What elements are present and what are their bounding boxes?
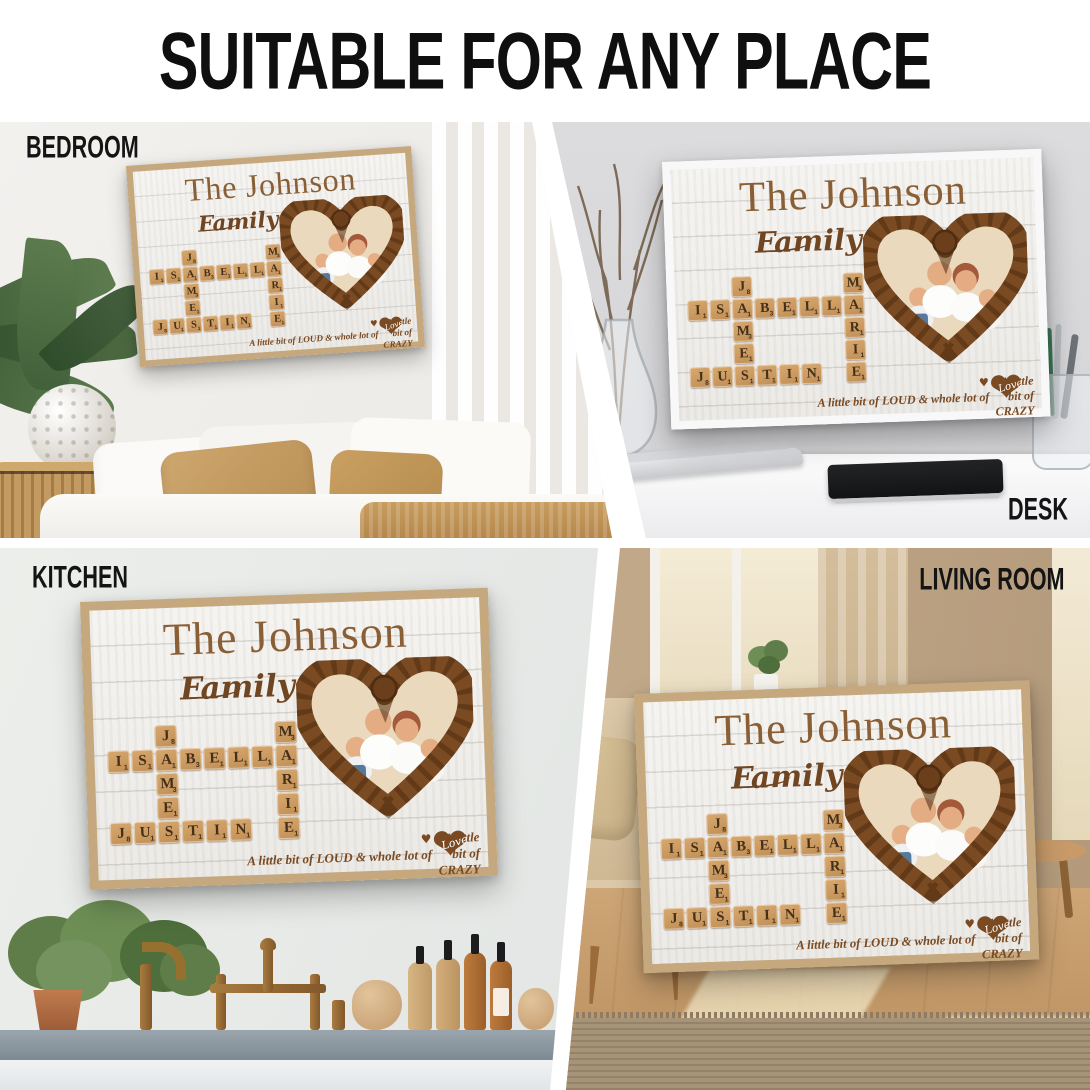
tile-value: 1 (181, 328, 184, 333)
scrabble-tile: M3 (183, 283, 199, 299)
heart-rope-photo-frame (843, 746, 1019, 909)
tile-value: 1 (723, 850, 727, 857)
poster-subtitle-text: Family (197, 207, 279, 238)
scrabble-tile: B3 (730, 835, 752, 857)
tile-value: 8 (722, 827, 726, 834)
tile-value: 1 (860, 330, 864, 337)
scrabble-tile: A1 (707, 836, 729, 858)
tile-value: 1 (772, 918, 776, 925)
tile-value: 1 (124, 764, 128, 771)
tile-value: 1 (244, 273, 247, 278)
scrabble-tile: M3 (156, 773, 179, 796)
scrabble-tile: E1 (216, 264, 232, 280)
tile-value: 1 (177, 277, 180, 282)
heart-rope-photo-frame (278, 194, 409, 316)
tile-letter: S (741, 369, 749, 383)
tile-value: 1 (725, 312, 729, 319)
crossword: J8M3I1S1A1B3E1L1L1A1M3R1E1I1J8U1S1T1I1N1… (105, 719, 301, 846)
scrabble-tile: J8 (154, 725, 177, 748)
tile-letter: I (285, 796, 291, 811)
tile-letter: J (713, 817, 721, 832)
tile-value: 3 (196, 762, 200, 769)
poster-canvas: The Johnson Family J8M3I1S1A1B3E (643, 689, 1030, 964)
scrabble-tile: B3 (199, 265, 215, 281)
tile-letter: N (785, 907, 796, 922)
tile-value: 3 (839, 823, 843, 830)
sill-plant-foliage (758, 656, 780, 674)
poster-canvas: The Johnson Family J8M3I1S1A1B3E (671, 157, 1042, 421)
tile-value: 1 (161, 278, 164, 283)
scrabble-tile: E1 (733, 343, 754, 364)
scrabble-tile: A1 (182, 266, 198, 282)
tile-value: 3 (770, 311, 774, 318)
scrabble-tile: J8 (731, 276, 752, 297)
tile-letter: S (170, 270, 177, 281)
family-name-poster: The Johnson Family J8M3I1S1A1B3E (662, 149, 1051, 430)
scene-label-desk: DESK (1008, 492, 1068, 528)
tile-letter: J (738, 280, 745, 294)
small-heart-icon: ♥ (420, 831, 431, 845)
tile-value: 1 (173, 811, 177, 818)
small-heart-icon: ♥ (964, 917, 975, 931)
tile-value: 1 (280, 304, 283, 309)
scrabble-tile: I1 (149, 269, 165, 285)
gourd (352, 980, 402, 1030)
scrabble-tile: I1 (756, 904, 778, 926)
scene-label-living-room: LIVING ROOM (919, 562, 1064, 598)
tile-letter: B (185, 752, 196, 767)
tile-letter: E (832, 906, 842, 921)
tile-value: 1 (747, 312, 751, 319)
poster-subtitle-text: Family (179, 668, 295, 708)
bridge-faucet-post (310, 974, 320, 1030)
tile-value: 1 (150, 836, 154, 843)
family-name-poster: The Johnson Family J8M3I1S1A1B3E (80, 588, 498, 890)
rope-knot (332, 210, 350, 228)
tile-value: 1 (196, 310, 199, 315)
poster-subtitle: Family (731, 759, 792, 796)
tile-letter: S (716, 910, 725, 925)
tile-letter: U (139, 825, 150, 840)
tile-letter: J (697, 370, 704, 384)
scrabble-tile: R1 (276, 768, 299, 791)
tile-letter: L (805, 300, 815, 314)
scrabble-tile: M3 (265, 244, 281, 260)
scrabble-tile: J8 (181, 249, 197, 265)
tile-letter: L (257, 749, 268, 764)
tile-value: 8 (705, 380, 709, 387)
scrabble-tile: U1 (169, 318, 185, 334)
scrabble-tile: M3 (733, 321, 754, 342)
poster-subtitle: Family (197, 209, 242, 237)
tile-letter: A (829, 836, 840, 851)
tile-letter: E (274, 313, 282, 324)
scrabble-tile: I1 (660, 838, 682, 860)
tile-letter: L (254, 264, 262, 275)
tile-letter: I (668, 842, 674, 857)
tile-value: 1 (228, 274, 231, 279)
scrabble-tile: L1 (800, 833, 822, 855)
tile-letter: T (207, 318, 215, 329)
tile-value: 1 (676, 852, 680, 859)
tile-letter: A (161, 752, 172, 767)
tile-letter: T (188, 824, 199, 839)
bottle-cap (471, 934, 479, 954)
heart-rope-photo-frame (295, 655, 477, 823)
scrabble-tile: I1 (687, 300, 708, 321)
poster-subtitle-text: Family (755, 223, 863, 260)
poster-in-living-room: The Johnson Family J8M3I1S1A1B3E (634, 680, 1039, 973)
heart-rope-photo-frame (862, 212, 1031, 368)
crossword: J8M3I1S1A1B3E1L1L1A1M3R1E1I1J8U1S1T1I1N1… (686, 271, 868, 389)
room-collage: The Johnson Family J8M3I1S1A1B3E (0, 122, 1090, 1090)
tile-letter: I (853, 343, 859, 357)
scrabble-tile: L1 (821, 295, 842, 316)
scrabble-tile: I1 (206, 819, 229, 842)
scrabble-tile: E1 (203, 747, 226, 770)
love-heart-badge: ❤ Love (974, 907, 1022, 953)
tile-value: 1 (261, 271, 264, 276)
scrabble-tile: L1 (251, 745, 274, 768)
tile-letter: S (716, 303, 724, 317)
tile-letter: L (783, 837, 793, 852)
terracotta-pot (30, 990, 86, 1032)
tile-letter: J (186, 252, 192, 263)
tile-letter: I (764, 908, 770, 923)
tile-letter: E (759, 838, 769, 853)
tile-letter: E (782, 300, 792, 314)
tile-value: 8 (164, 329, 167, 334)
tile-value: 3 (748, 334, 752, 341)
gourd (518, 988, 554, 1030)
scrabble-tile: A1 (732, 298, 753, 319)
tile-letter: L (806, 837, 816, 852)
scrabble-tile: J8 (690, 367, 711, 388)
rope-knot (933, 230, 957, 254)
scrabble-tile: L1 (249, 262, 265, 278)
tile-letter: I (274, 297, 279, 308)
tile-value: 1 (792, 310, 796, 317)
tile-value: 8 (747, 289, 751, 296)
scrabble-tile: E1 (157, 797, 180, 820)
tile-value: 8 (126, 836, 130, 843)
tile-value: 8 (171, 739, 175, 746)
bottle-cap (416, 946, 424, 964)
tile-letter: B (203, 268, 211, 279)
tile-value: 1 (860, 352, 864, 359)
tile-value: 1 (702, 921, 706, 928)
tile-letter: E (220, 267, 228, 278)
tile-letter: E (739, 346, 749, 360)
scrabble-tile: U1 (134, 821, 157, 844)
rope-knot (917, 765, 942, 790)
scrabble-tile: R1 (267, 277, 283, 293)
tile-value: 3 (724, 873, 728, 880)
tile-value: 1 (293, 807, 297, 814)
tile-letter: A (281, 748, 292, 763)
scrabble-tile: E1 (709, 883, 731, 905)
tile-value: 1 (725, 896, 729, 903)
tile-value: 1 (220, 761, 224, 768)
scrabble-tile: I1 (779, 364, 800, 385)
tile-letter: J (162, 728, 170, 743)
love-heart-badge: ❤ Love (988, 366, 1034, 410)
tile-letter: N (806, 366, 817, 380)
tile-letter: R (850, 320, 861, 334)
scrabble-tile: J8 (663, 908, 685, 930)
knit-throw-blanket (360, 502, 630, 538)
scrabble-tile: L1 (799, 296, 820, 317)
tile-letter: N (235, 822, 246, 837)
scrabble-tile: R1 (844, 317, 865, 338)
product-showcase-image: SUITABLE FOR ANY PLACE The Johnson Famil… (0, 0, 1090, 1090)
tile-value: 1 (148, 764, 152, 771)
tile-value: 1 (725, 920, 729, 927)
tile-letter: R (830, 859, 841, 874)
tile-letter: I (214, 823, 220, 838)
bridge-faucet-knob (260, 938, 276, 950)
love-heart-badge: ❤ Love (431, 821, 481, 869)
scrabble-tile: L1 (777, 834, 799, 856)
tile-value: 1 (814, 309, 818, 316)
scrabble-tile: T1 (733, 905, 755, 927)
tile-letter: L (233, 750, 244, 765)
scrabble-tile: S1 (186, 317, 202, 333)
tile-letter: L (827, 299, 837, 313)
rope-knot (371, 676, 396, 701)
tile-letter: I (833, 882, 839, 897)
scrabble-tile: J8 (152, 319, 168, 335)
scrabble-tile: E1 (777, 297, 798, 318)
tile-value: 3 (746, 849, 750, 856)
scrabble-tile: S1 (165, 267, 181, 283)
small-heart-icon: ♥ (979, 375, 989, 388)
poster-in-bedroom: The Johnson Family J8M3I1S1A1B3E (126, 146, 425, 367)
scrabble-tile: M3 (843, 272, 864, 293)
tile-letter: R (282, 772, 293, 787)
tile-value: 1 (703, 313, 707, 320)
tile-letter: E (714, 886, 724, 901)
amber-bottle (464, 952, 486, 1030)
tile-value: 1 (839, 846, 843, 853)
poster-subtitle: Family (179, 669, 242, 707)
tile-letter: E (851, 365, 861, 379)
tile-value: 1 (292, 759, 296, 766)
scene-label-kitchen: KITCHEN (32, 560, 128, 596)
family-name-poster: The Johnson Family J8M3I1S1A1B3E (634, 680, 1039, 973)
tile-letter: L (237, 265, 245, 276)
tile-value: 1 (174, 835, 178, 842)
bottle-label (493, 988, 509, 1016)
tile-value: 8 (193, 259, 196, 264)
poster-canvas: The Johnson Family J8M3I1S1A1B3E (133, 153, 419, 361)
scrabble-tile: T1 (182, 820, 205, 843)
tile-value: 1 (268, 759, 272, 766)
bridge-faucet-post (216, 974, 226, 1030)
tile-letter: I (154, 271, 159, 282)
tile-value: 1 (859, 308, 863, 315)
scrabble-tile: I1 (268, 294, 284, 310)
tile-letter: B (736, 839, 746, 854)
scrabble-tile: I1 (825, 879, 847, 901)
tile-value: 1 (194, 276, 197, 281)
tile-value: 1 (837, 308, 841, 315)
family-name-poster: The Johnson Family J8M3I1S1A1B3E (126, 146, 425, 367)
tagline: ♥ A little bit of CRAZY A little bit of … (810, 373, 1034, 411)
scrabble-tile: S1 (131, 750, 154, 773)
tile-letter: I (695, 304, 701, 318)
tile-letter: J (117, 826, 125, 841)
tile-value: 1 (293, 783, 297, 790)
external-drive (827, 459, 1003, 499)
tile-letter: I (115, 754, 121, 769)
scene-label-bedroom: BEDROOM (26, 130, 139, 166)
tile-letter: J (157, 322, 163, 333)
scrabble-tile: S1 (158, 821, 181, 844)
header: SUITABLE FOR ANY PLACE (0, 0, 1090, 122)
tile-value: 3 (173, 787, 177, 794)
tile-value: 1 (198, 326, 201, 331)
tile-letter: U (717, 370, 728, 384)
scrabble-tile: T1 (202, 315, 218, 331)
tile-letter: S (138, 753, 147, 768)
tile-value: 1 (727, 379, 731, 386)
tile-letter: E (163, 800, 174, 815)
scrabble-tile: M3 (822, 809, 844, 831)
tile-letter: A (737, 302, 748, 316)
scrabble-tile: I1 (277, 792, 300, 815)
scrabble-tile: L1 (232, 263, 248, 279)
tile-letter: T (762, 368, 772, 382)
tile-value: 1 (198, 834, 202, 841)
tile-value: 1 (278, 270, 281, 275)
scrabble-tile: A1 (275, 745, 298, 768)
scrabble-tile: U1 (712, 366, 733, 387)
poster-in-kitchen: The Johnson Family J8M3I1S1A1B3E (80, 588, 498, 890)
tile-value: 3 (858, 285, 862, 292)
tile-value: 3 (291, 735, 295, 742)
scrabble-tile: E1 (185, 300, 201, 316)
crossword: J8M3I1S1A1B3E1L1L1A1M3R1E1I1J8U1S1T1I1N1… (147, 243, 287, 336)
tile-value: 3 (195, 293, 198, 298)
tile-value: 1 (794, 377, 798, 384)
bottle (436, 958, 460, 1030)
scrabble-tile: L1 (227, 746, 250, 769)
bridge-faucet-spout (263, 946, 273, 992)
poster-on-desk: The Johnson Family J8M3I1S1A1B3E (662, 149, 1051, 430)
love-heart-badge: ❤ Love (377, 310, 413, 344)
scrabble-tile: S1 (709, 906, 731, 928)
scrabble-tile: A1 (266, 260, 282, 276)
tile-letter: E (284, 820, 295, 835)
tile-value: 1 (770, 848, 774, 855)
scrabble-tile: J8 (706, 813, 728, 835)
scrabble-tile: A1 (155, 749, 178, 772)
tile-value: 3 (277, 254, 280, 259)
poster-subtitle: Family (755, 225, 814, 260)
tile-letter: I (787, 367, 793, 381)
scrabble-tile: B3 (754, 298, 775, 319)
scrabble-tile: M3 (274, 721, 297, 744)
soap-pump (332, 1000, 345, 1030)
tile-letter: S (690, 841, 699, 856)
tile-value: 3 (211, 275, 214, 280)
poster-canvas: The Johnson Family J8M3I1S1A1B3E (89, 597, 488, 880)
tile-value: 1 (231, 324, 234, 329)
glass-vase (582, 320, 656, 456)
scrabble-tile: U1 (686, 907, 708, 929)
tile-letter: S (165, 824, 174, 839)
tile-letter: I (225, 317, 230, 328)
scrabble-tile: I1 (845, 339, 866, 360)
tile-letter: T (739, 909, 749, 924)
area-rug (540, 1018, 1090, 1090)
scrabble-tile: S1 (710, 299, 731, 320)
tile-letter: E (209, 751, 220, 766)
tile-value: 1 (172, 763, 176, 770)
page-title: SUITABLE FOR ANY PLACE (159, 15, 931, 107)
scrabble-tile: T1 (757, 365, 778, 386)
scrabble-tile: I1 (219, 314, 235, 330)
tile-value: 1 (700, 851, 704, 858)
scrabble-tile: E1 (753, 835, 775, 857)
tile-letter: S (191, 319, 198, 330)
scrabble-tile: S1 (734, 365, 755, 386)
tile-value: 1 (279, 287, 282, 292)
tile-letter: J (670, 911, 678, 926)
scrabble-tile: R1 (824, 856, 846, 878)
tile-value: 1 (772, 378, 776, 385)
scrabble-tile: S1 (684, 837, 706, 859)
tile-value: 8 (679, 921, 683, 928)
tile-letter: E (189, 303, 197, 314)
tile-value: 1 (793, 847, 797, 854)
tile-value: 1 (244, 760, 248, 767)
crossword: J8M3I1S1A1B3E1L1L1A1M3R1E1I1J8U1S1T1I1N1… (659, 808, 849, 931)
tile-letter: A (849, 298, 860, 312)
tile-value: 1 (841, 892, 845, 899)
bottle-cap (444, 940, 452, 960)
tagline: ♥ A little bit of CRAZY A little bit of … (239, 829, 480, 870)
scrabble-tile: I1 (107, 750, 130, 773)
scrabble-tile: A1 (823, 832, 845, 854)
tile-value: 1 (816, 847, 820, 854)
tile-letter: B (760, 301, 770, 315)
scrabble-tile: A1 (843, 295, 864, 316)
scrabble-tile: M3 (708, 860, 730, 882)
tile-letter: U (692, 910, 703, 925)
scrabble-tile: J8 (110, 822, 133, 845)
tile-value: 1 (750, 378, 754, 385)
poster-subtitle-text: Family (731, 758, 843, 797)
tile-value: 1 (214, 325, 217, 330)
tile-value: 1 (749, 356, 753, 363)
tile-value: 1 (222, 833, 226, 840)
tile-value: 1 (840, 869, 844, 876)
bottle (408, 962, 432, 1030)
tile-value: 1 (749, 919, 753, 926)
tagline: ♥ A little bit of CRAZY A little bit of … (789, 914, 1023, 954)
tile-letter: A (712, 840, 723, 855)
bottle-cap (497, 942, 505, 962)
scrabble-tile: B3 (179, 748, 202, 771)
